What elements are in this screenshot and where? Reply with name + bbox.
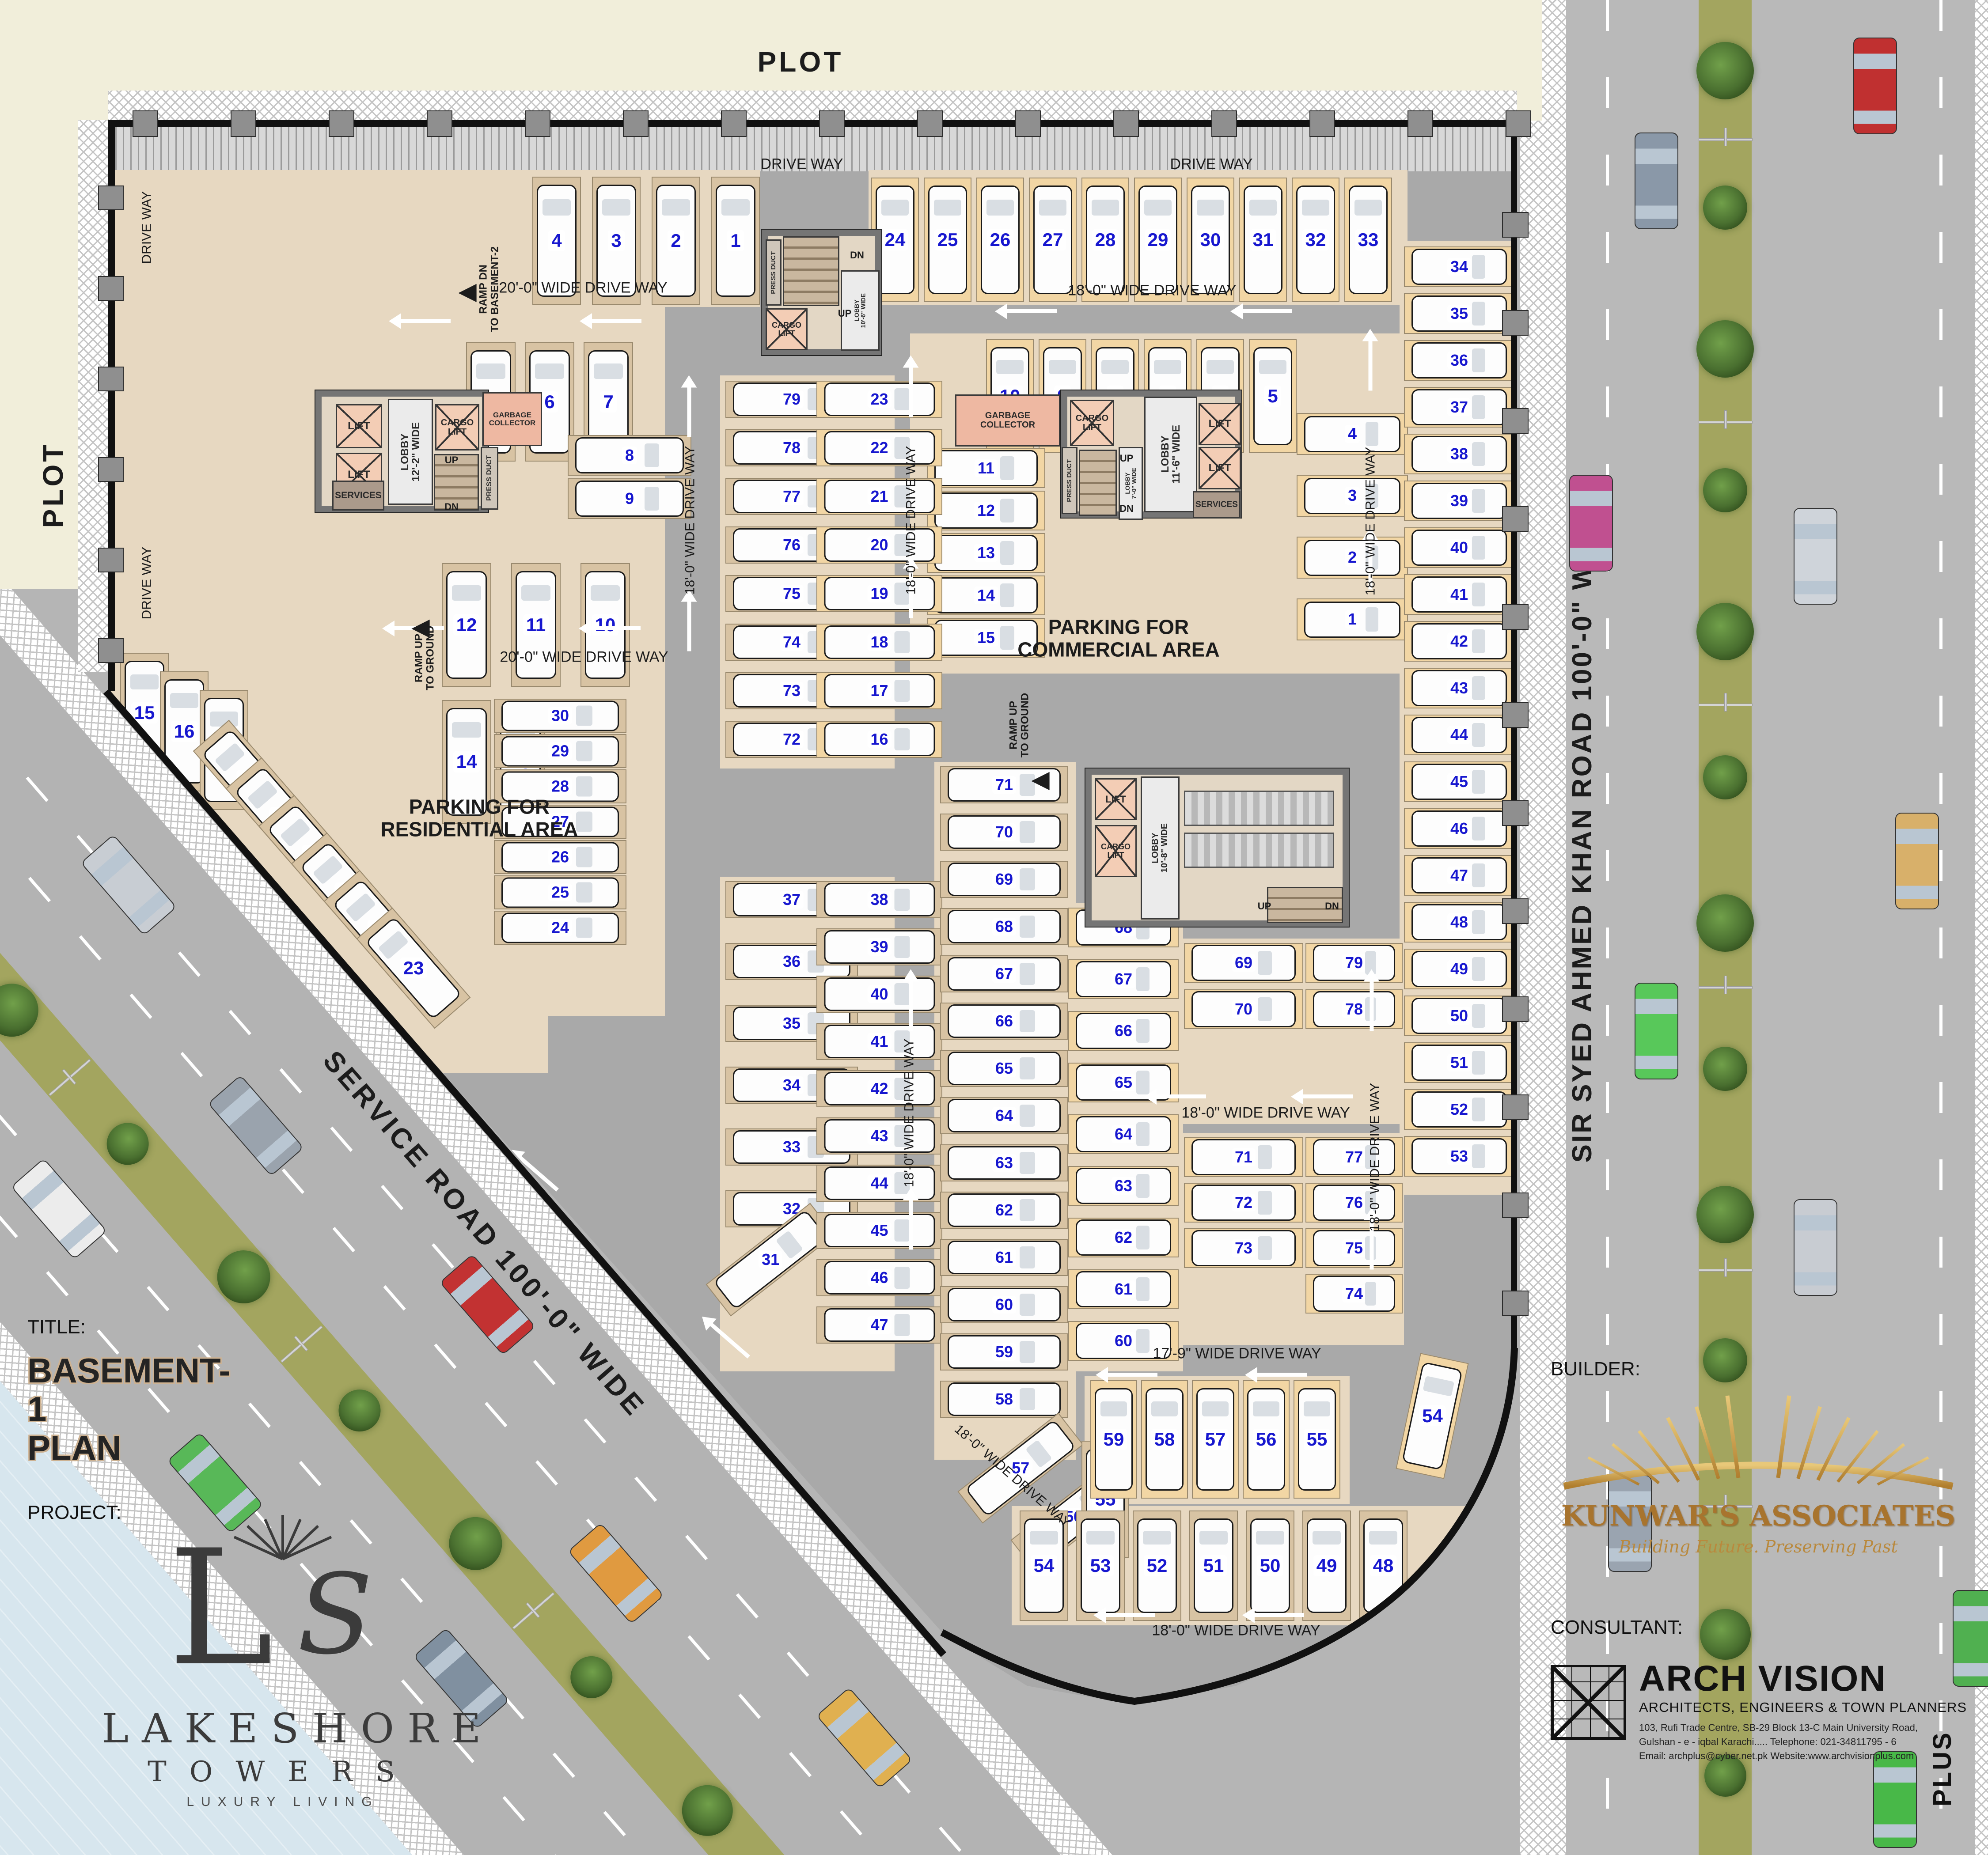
plan-label: DN: [1119, 503, 1134, 514]
car-icon: 45: [824, 1214, 935, 1247]
wall-pilaster: [819, 110, 845, 137]
stall-number: 26: [548, 848, 572, 866]
parking-stall: 46: [1404, 808, 1514, 849]
builder-tagline: Building Future. Preserving Past: [1537, 1537, 1979, 1556]
parking-stall: 65: [940, 1050, 1068, 1087]
stall-number: 1: [1345, 610, 1360, 628]
parking-stall: 51: [1189, 1510, 1238, 1621]
car-icon: 47: [1411, 857, 1507, 893]
parking-stall: 50: [1246, 1510, 1294, 1621]
car-icon: 59: [948, 1335, 1061, 1369]
stall-number: 58: [1151, 1429, 1178, 1450]
direction-arrow: [1369, 333, 1373, 391]
direction-arrow: [1098, 1613, 1155, 1617]
car-icon: 47: [824, 1308, 935, 1342]
stall-number: 24: [548, 919, 572, 936]
car-icon: 71: [1191, 1139, 1296, 1175]
parking-stall: 29: [494, 734, 626, 768]
stall-number: 47: [1447, 867, 1471, 884]
stall-number: 62: [992, 1201, 1016, 1219]
parking-stall: 79: [1305, 943, 1403, 983]
car-icon: 50: [1250, 1518, 1290, 1613]
plan-label: DRIVE WAY: [140, 191, 154, 264]
parking-stall: 4: [1297, 413, 1408, 455]
car-icon: 39: [824, 930, 935, 964]
parking-stall: 70: [1184, 989, 1303, 1029]
stall-number: 64: [1112, 1125, 1135, 1143]
core-room: PRESS DUCT: [766, 239, 782, 306]
stall-number: 18: [867, 633, 891, 651]
car-icon: 31: [1244, 185, 1282, 294]
consultant-name-plus: PLUS: [1927, 1661, 1957, 1806]
car-icon: 25: [501, 877, 619, 908]
plan-label: 18'-0" WIDE DRIVE WAY: [1368, 1083, 1382, 1231]
car-icon: 49: [1411, 951, 1507, 987]
wall-pilaster: [1502, 506, 1529, 532]
plan-label: 18'-0" WIDE DRIVE WAY: [1363, 447, 1378, 595]
stall-number: 52: [1447, 1101, 1471, 1118]
car-icon: 67: [948, 957, 1061, 991]
stall-number: 74: [1342, 1285, 1366, 1302]
project-tagline: LUXURY LIVING: [102, 1794, 464, 1810]
parking-stall: 25: [494, 875, 626, 909]
plan-label: DN: [850, 250, 864, 261]
wall-pilaster: [1502, 898, 1529, 924]
stall-number: 58: [992, 1390, 1016, 1408]
staircase: [1079, 450, 1117, 516]
stall-number: 76: [1342, 1194, 1366, 1211]
lift-shaft: CARGO LIFT: [1070, 400, 1114, 446]
street-light-icon: [1699, 1266, 1752, 1273]
parking-stall: 70: [940, 814, 1068, 851]
car-icon: 42: [824, 1072, 935, 1105]
parking-stall: 40: [816, 976, 942, 1013]
stall-number: 48: [1447, 913, 1471, 931]
parking-stall: 25: [924, 178, 971, 302]
light-pole: [1724, 410, 1727, 429]
light-pole: [1724, 976, 1727, 994]
wall-pilaster: [1309, 110, 1335, 137]
stall-number: 54: [1031, 1555, 1058, 1576]
parking-stall: 11: [927, 448, 1045, 488]
plan-label: 18'-0" WIDE DRIVE WAY: [904, 446, 918, 594]
direction-arrow: [999, 309, 1057, 313]
stall-number: 44: [867, 1174, 891, 1192]
car-icon: 12: [934, 492, 1038, 529]
stall-number: 74: [780, 633, 804, 651]
car-icon: 77: [1313, 1139, 1395, 1175]
wall-pilaster: [1211, 110, 1237, 137]
parking-stall: 59: [940, 1333, 1068, 1370]
stall-number: 3: [1345, 487, 1360, 504]
car-icon: 63: [948, 1146, 1061, 1180]
stall-number: 4: [548, 230, 565, 251]
stall-number: 28: [548, 777, 572, 795]
direction-arrow: [1249, 1373, 1307, 1377]
parking-stall: 35: [1404, 293, 1514, 334]
stall-number: 7: [600, 391, 616, 412]
street-light-icon: [1699, 701, 1752, 708]
plan-label: 18'-0" WIDE DRIVE WAY: [902, 1039, 917, 1187]
parking-stall: 42: [1404, 621, 1514, 662]
wall-pilaster: [1408, 110, 1433, 137]
plan-label: 18'-0" WIDE DRIVE WAY: [683, 446, 698, 594]
stall-number: 34: [780, 1076, 804, 1094]
stall-number: 73: [1232, 1239, 1256, 1257]
plan-label: ◀: [1031, 766, 1050, 792]
stall-number: 19: [867, 585, 891, 602]
wall-pilaster: [1502, 1094, 1529, 1120]
parking-stall: 12: [442, 563, 491, 687]
direction-arrow: [1235, 309, 1292, 313]
stall-number: 70: [1232, 1000, 1256, 1018]
consultant-label: CONSULTANT:: [1551, 1616, 1683, 1639]
direction-arrow: [909, 1192, 913, 1250]
wall-pilaster: [1502, 408, 1529, 434]
stall-number: 77: [780, 488, 804, 505]
stall-number: 29: [1145, 229, 1172, 250]
stall-number: 77: [1342, 1148, 1366, 1166]
stall-number: 61: [992, 1249, 1016, 1266]
stall-number: 26: [987, 229, 1014, 250]
sheet-title: BASEMENT-1 PLAN: [27, 1351, 230, 1467]
plan-label: DRIVE WAY: [140, 546, 154, 619]
plan-label: UP: [1120, 453, 1134, 464]
car-icon: 29: [1138, 185, 1177, 294]
stall-number: 72: [1232, 1194, 1256, 1211]
car-icon: 52: [1137, 1518, 1177, 1613]
direction-arrow: [583, 626, 641, 630]
car-icon: 42: [1411, 623, 1507, 659]
stall-number: 29: [548, 742, 572, 760]
car-icon: 52: [1411, 1091, 1507, 1128]
car-icon: 66: [1076, 1013, 1171, 1049]
plot-sidewalk-top: [108, 91, 1517, 120]
wall-pilaster: [98, 548, 124, 572]
stall-number: 50: [1447, 1007, 1471, 1025]
parking-stall: 31: [1239, 178, 1287, 302]
archvision-logo-icon: [1551, 1665, 1626, 1740]
parking-stall: 43: [1404, 668, 1514, 708]
parking-stall: 53: [1404, 1136, 1514, 1177]
car-icon: 11: [934, 450, 1038, 486]
plan-label: RAMP DN TO BASEMENT-2: [478, 246, 501, 332]
parking-stall: 58: [940, 1381, 1068, 1418]
wall-pilaster: [1502, 1192, 1529, 1218]
parking-stall: 66: [940, 1003, 1068, 1040]
stall-number: 45: [867, 1222, 891, 1239]
stall-number: 40: [867, 985, 891, 1003]
builder-label: BUILDER:: [1551, 1358, 1640, 1380]
monogram-letter-s: S: [297, 1550, 373, 1679]
car-icon: 38: [824, 883, 935, 916]
wall-pilaster: [427, 110, 452, 137]
stall-number: 41: [867, 1033, 891, 1050]
stall-number: 65: [1112, 1074, 1135, 1091]
car-icon: 53: [1411, 1138, 1507, 1174]
stall-number: 2: [1345, 549, 1360, 566]
parking-stall: 48: [1359, 1510, 1408, 1621]
stall-number: 69: [1232, 954, 1256, 972]
car-icon: 76: [1313, 1185, 1395, 1221]
stall-number: 40: [1447, 539, 1471, 556]
parking-stall: 23: [816, 381, 942, 418]
core-room: PRESS DUCT: [481, 447, 498, 510]
parking-stall: 18: [816, 624, 942, 661]
lift-shaft: LIFT: [336, 404, 382, 448]
core-room: SERVICES: [1193, 491, 1241, 519]
parking-stall: 74: [1305, 1274, 1403, 1314]
car-icon: 14: [934, 577, 1038, 613]
plan-label: DRIVE WAY: [760, 156, 843, 172]
car-icon: 46: [824, 1261, 935, 1295]
car-icon: 5: [1253, 347, 1292, 445]
car-icon: 62: [1076, 1219, 1171, 1256]
lane-dash: [1939, 0, 1942, 1855]
stall-number: 25: [934, 229, 961, 250]
stall-number: 42: [1447, 632, 1471, 650]
parking-stall: 62: [1068, 1218, 1179, 1257]
parking-stall: 48: [1404, 902, 1514, 943]
parking-stall: 33: [1344, 178, 1392, 302]
stall-number: 32: [1302, 229, 1329, 250]
stall-number: 31: [1250, 229, 1277, 250]
parking-stall: 67: [1068, 959, 1179, 999]
stall-number: 31: [759, 1251, 782, 1268]
car-icon: 38: [1411, 436, 1507, 472]
car-icon: 12: [446, 571, 487, 679]
wall-pilaster: [329, 110, 354, 137]
direction-arrow: [1247, 1613, 1304, 1617]
car-icon: 40: [1411, 530, 1507, 566]
car-icon: 29: [501, 736, 619, 766]
car-icon: 24: [501, 912, 619, 943]
parking-stall: 1: [1297, 598, 1408, 640]
wall-pilaster: [98, 367, 124, 391]
parking-stall: 61: [1068, 1269, 1179, 1309]
stall-number: 71: [992, 776, 1016, 794]
boundary-wall: [1511, 120, 1518, 1352]
stall-number: 60: [992, 1296, 1016, 1314]
wall-pilaster: [1502, 604, 1529, 630]
stall-number: 63: [1112, 1177, 1135, 1195]
car-icon: 63: [1076, 1168, 1171, 1204]
stall-number: 30: [1197, 229, 1224, 250]
car-icon: 68: [948, 910, 1061, 943]
parking-stall: 78: [1305, 989, 1403, 1029]
builder-crown-icon: [1537, 1382, 1979, 1497]
car-icon: 23: [824, 382, 935, 416]
parking-stall: 5: [1249, 339, 1297, 453]
car-icon: 67: [1076, 961, 1171, 997]
car-icon: 2: [1304, 540, 1400, 576]
stall-number: 53: [1447, 1147, 1471, 1165]
stall-number: 57: [1202, 1429, 1229, 1450]
stall-number: 1: [727, 230, 744, 251]
car-icon: 61: [948, 1241, 1061, 1274]
stall-number: 10: [592, 614, 619, 635]
stall-number: 51: [1447, 1054, 1471, 1071]
parking-stall: 59: [1090, 1380, 1137, 1499]
stall-number: 49: [1447, 960, 1471, 978]
car-icon: 58: [948, 1382, 1061, 1416]
stall-number: 64: [992, 1107, 1016, 1124]
plan-label: UP: [838, 308, 852, 319]
car-icon: 39: [1411, 483, 1507, 519]
lift-shaft: LIFT: [1199, 403, 1241, 445]
stall-number: 44: [1447, 726, 1471, 744]
plan-label: ◀: [411, 614, 430, 640]
plan-label: ◀: [458, 278, 477, 304]
lift-shaft: CARGO LIFT: [435, 404, 479, 450]
stall-number: 42: [867, 1080, 891, 1098]
plan-label: DRIVE WAY: [1170, 156, 1252, 172]
parking-stall: 55: [1294, 1380, 1340, 1499]
stall-number: 16: [867, 731, 891, 748]
parking-stall: 37: [1404, 387, 1514, 428]
parking-stall: 16: [816, 721, 942, 758]
monogram-letter-l: L: [168, 1537, 273, 1680]
car-icon: [1853, 38, 1897, 134]
plan-label: 18'-0" WIDE DRIVE WAY: [1152, 1622, 1320, 1639]
car-icon: 37: [1411, 389, 1507, 425]
car-icon: 43: [824, 1119, 935, 1153]
car-icon: 74: [1313, 1276, 1395, 1312]
car-icon: 64: [948, 1099, 1061, 1132]
car-icon: 69: [948, 863, 1061, 896]
parking-stall: 64: [1068, 1114, 1179, 1154]
car-icon: 55: [1298, 1388, 1336, 1491]
car-icon: 73: [1191, 1230, 1296, 1266]
direction-arrow: [584, 319, 641, 323]
parking-stall: 43: [816, 1117, 942, 1155]
car-icon: 64: [1076, 1116, 1171, 1152]
main-road-surface: [1566, 0, 1988, 1855]
plan-label: DN: [1325, 901, 1339, 912]
parking-stall: 2: [1297, 537, 1408, 579]
plan-label: PARKING FOR COMMERCIAL AREA: [1017, 616, 1219, 660]
title-label: TITLE:: [27, 1316, 86, 1338]
car-icon: [1794, 508, 1837, 605]
stall-number: 45: [1447, 773, 1471, 791]
car-icon: 34: [1411, 249, 1507, 285]
car-icon: 18: [824, 625, 935, 659]
car-icon: 43: [1411, 670, 1507, 706]
plan-label: DN: [444, 502, 459, 512]
main-road-label: SIR SYED AHMED KHAN ROAD 100'-0" WIDE: [1567, 511, 1597, 1163]
stall-number: 11: [975, 459, 998, 477]
parking-stall: 58: [1141, 1380, 1188, 1499]
stall-number: 72: [780, 731, 804, 748]
car-icon: 69: [1191, 945, 1296, 981]
stall-number: 78: [780, 439, 804, 457]
parking-stall: 24: [494, 911, 626, 945]
stall-number: 65: [992, 1060, 1016, 1077]
parking-stall: 47: [1404, 855, 1514, 896]
project-logo: L S LAKESHORE TOWERS LUXURY LIVING: [102, 1519, 464, 1810]
parking-stall: 56: [1243, 1380, 1290, 1499]
car-icon: 27: [1033, 185, 1072, 294]
stall-number: 11: [523, 614, 549, 635]
parking-stall: 61: [940, 1239, 1068, 1276]
direction-arrow: [393, 319, 451, 323]
stall-number: 47: [867, 1316, 891, 1334]
parking-stall: 45: [816, 1212, 942, 1249]
parking-stall: 41: [816, 1023, 942, 1060]
parking-stall: 45: [1404, 761, 1514, 802]
car-icon: 9: [575, 481, 684, 517]
parking-stall: 21: [816, 478, 942, 515]
stall-number: 75: [1342, 1239, 1366, 1257]
stall-number: 73: [780, 682, 804, 700]
wall-pilaster: [525, 110, 550, 137]
car-icon: 44: [1411, 717, 1507, 753]
escalator: [1184, 791, 1334, 826]
car-icon: 46: [1411, 810, 1507, 847]
car-icon: [1635, 983, 1678, 1079]
lane-dash: [1606, 0, 1609, 1855]
staircase: [783, 236, 839, 306]
parking-stall: 42: [816, 1070, 942, 1107]
tree-icon: [1703, 1047, 1747, 1091]
car-icon: [1873, 1751, 1917, 1848]
parking-stall: 73: [1184, 1228, 1303, 1268]
stall-number: 2: [668, 230, 684, 251]
stall-number: 63: [992, 1154, 1016, 1172]
parking-stall: 1: [711, 177, 760, 305]
tree-icon: [1703, 755, 1747, 799]
car-icon: 53: [1081, 1518, 1120, 1613]
parking-stall: 52: [1133, 1510, 1181, 1621]
core-room: PRESS DUCT: [1062, 447, 1077, 514]
lift-shaft: CARGO LIFT: [1095, 825, 1137, 877]
parking-stall: 44: [1404, 715, 1514, 755]
parking-stall: 47: [816, 1306, 942, 1344]
lakeshore-monogram: L S: [102, 1519, 464, 1705]
parking-stall: 38: [1404, 434, 1514, 474]
stall-number: 4: [1345, 425, 1360, 443]
parking-stall: 13: [927, 533, 1045, 573]
car-icon: 28: [1086, 185, 1125, 294]
stall-number: 43: [1447, 679, 1471, 697]
car-icon: 1: [716, 185, 755, 297]
direction-arrow: [1295, 1094, 1353, 1098]
stall-number: 46: [867, 1269, 891, 1287]
parking-stall: 34: [1404, 246, 1514, 287]
parking-stall: 8: [568, 435, 691, 476]
parking-stall: 75: [1305, 1228, 1403, 1268]
car-icon: 70: [1191, 991, 1296, 1027]
stall-number: 66: [1112, 1022, 1135, 1040]
car-icon: [1569, 475, 1613, 572]
parking-stall: 53: [1076, 1510, 1125, 1621]
tree-icon: [1703, 1338, 1747, 1382]
stall-number: 14: [453, 751, 480, 772]
stall-number: 38: [1447, 445, 1471, 463]
car-icon: 17: [824, 674, 935, 708]
car-icon: 40: [824, 977, 935, 1011]
parking-stall: 40: [1404, 527, 1514, 568]
plan-label: PARKING FOR RESIDENTIAL AREA: [380, 795, 578, 840]
tree-icon: [1703, 185, 1747, 230]
builder-name: KUNWAR'S ASSOCIATES: [1537, 1499, 1979, 1533]
car-icon: 75: [1313, 1230, 1395, 1266]
stall-number: 35: [1447, 305, 1471, 322]
light-pole: [1724, 1258, 1727, 1277]
parking-stall: 54: [1396, 1353, 1468, 1479]
project-name: LAKESHORE: [102, 1705, 464, 1752]
car-icon: 1: [1304, 602, 1400, 638]
